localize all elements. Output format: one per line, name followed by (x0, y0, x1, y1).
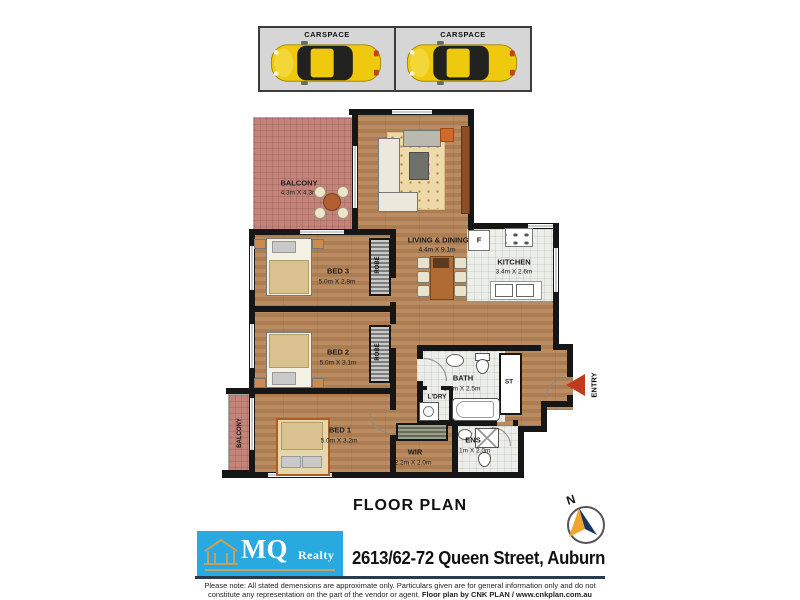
house-icon (203, 537, 239, 569)
window (250, 324, 254, 368)
wall (390, 435, 396, 478)
storage-label: ST (505, 379, 513, 386)
wall (249, 388, 395, 394)
wir-wardrobe-icon (396, 423, 448, 441)
pillow-icon (281, 456, 301, 468)
balcony-main-dims: 4.3m X 4.3m (281, 190, 318, 197)
window (392, 110, 432, 114)
car-icon (404, 40, 520, 86)
washer-door-icon (423, 406, 434, 417)
entry-arrow-icon (566, 374, 585, 396)
bed3-label: BED 3 (327, 267, 349, 276)
bed3-dims: 5.0m X 2.8m (319, 279, 356, 286)
outdoor-chair-icon (337, 186, 349, 198)
balcony-main-label: BALCONY (280, 179, 317, 188)
ens-dims: 2.1m X 2.0m (454, 448, 491, 455)
wall (417, 386, 427, 390)
outdoor-chair-icon (337, 207, 349, 219)
laundry-label: L'DRY (428, 394, 447, 401)
dining-chair-icon (454, 257, 467, 269)
blanket-icon (269, 334, 309, 368)
carspace-1-label: CARSPACE (260, 30, 394, 39)
disclaimer: Please note: All stated demensions are a… (198, 581, 602, 599)
kitchen-dims: 3.4m X 2.6m (496, 269, 533, 276)
dining-chair-icon (417, 285, 430, 297)
compass: N (556, 490, 612, 548)
living-dining-dims: 4.4m X 9.1m (419, 247, 456, 254)
logo-mq-text: MQ (241, 534, 288, 565)
pillow-icon (272, 241, 296, 253)
fridge-label: F (477, 236, 482, 245)
logo-underline (205, 569, 335, 571)
wall (567, 344, 573, 377)
coffee-table-icon (409, 152, 429, 180)
carspace-2: CARSPACE (394, 26, 532, 92)
window (353, 146, 357, 208)
outdoor-chair-icon (314, 186, 326, 198)
ottoman-icon (403, 130, 441, 147)
bath-label: BATH (453, 374, 473, 383)
side-table-icon (440, 128, 454, 142)
ens-label: ENS (465, 436, 480, 445)
window (250, 398, 254, 450)
dining-chair-icon (417, 257, 430, 269)
disclaimer-line2: constitute any representation on the par… (208, 590, 422, 599)
dining-chair-icon (417, 271, 430, 283)
dining-chair-icon (454, 271, 467, 283)
pillow-icon (302, 456, 322, 468)
window (250, 246, 254, 290)
wall (417, 345, 541, 351)
bed1-dims: 5.0m X 3.2m (321, 438, 358, 445)
car-icon (268, 40, 384, 86)
wall (417, 351, 423, 359)
bath-dims: 3.2m X 2.5m (444, 386, 481, 393)
tv-cabinet-icon (461, 126, 470, 214)
wall (518, 426, 524, 478)
carspace-2-label: CARSPACE (396, 30, 530, 39)
floor-plan-page: CARSPACE CARSPACE BALC (0, 0, 800, 600)
nightstand-icon (254, 239, 266, 249)
balcony-side-label: BALCONY (237, 418, 243, 448)
bathtub-inner-icon (456, 401, 494, 418)
window (300, 230, 344, 234)
carspace-1: CARSPACE (258, 26, 396, 92)
sofa-chaise-icon (378, 192, 418, 212)
basin-icon (446, 354, 464, 367)
entry-label: ENTRY (590, 372, 599, 397)
dining-chair-icon (454, 285, 467, 297)
stove-icon (505, 228, 533, 247)
bed2-dims: 5.0m X 3.1m (320, 360, 357, 367)
wir-label: WIR (408, 448, 423, 457)
robe-bed2-label: ROBE (375, 343, 381, 360)
kitchen-label: KITCHEN (497, 258, 530, 267)
pillow-icon (272, 372, 296, 385)
outdoor-chair-icon (314, 207, 326, 219)
property-address: 2613/62-72 Queen Street, Auburn (352, 548, 605, 569)
bed2-label: BED 2 (327, 348, 349, 357)
wall (513, 420, 518, 426)
footer-divider (195, 576, 605, 579)
window (554, 248, 558, 292)
blanket-icon (281, 422, 323, 450)
blanket-icon (269, 260, 309, 294)
living-dining-label: LIVING & DINING (408, 236, 469, 245)
disclaimer-credit: Floor plan by CNK PLAN / www.cnkplan.com… (422, 590, 592, 599)
wall (390, 302, 396, 324)
wir-dims: 2.2m X 2.0m (395, 460, 432, 467)
placemat-icon (433, 258, 449, 268)
nightstand-icon (312, 239, 324, 249)
nightstand-icon (312, 378, 324, 388)
disclaimer-line1: Please note: All stated demensions are a… (204, 581, 595, 590)
nightstand-icon (254, 378, 266, 388)
bed1-label: BED 1 (329, 426, 351, 435)
logo-realty-text: Realty (298, 548, 334, 563)
robe-bed3-label: ROBE (375, 256, 381, 273)
agency-logo: MQ Realty (197, 531, 343, 576)
compass-north-label: N (565, 492, 578, 508)
wall (249, 306, 395, 312)
sink-icon (516, 284, 534, 297)
sink-icon (495, 284, 513, 297)
floor-plan-title: FLOOR PLAN (310, 497, 510, 515)
